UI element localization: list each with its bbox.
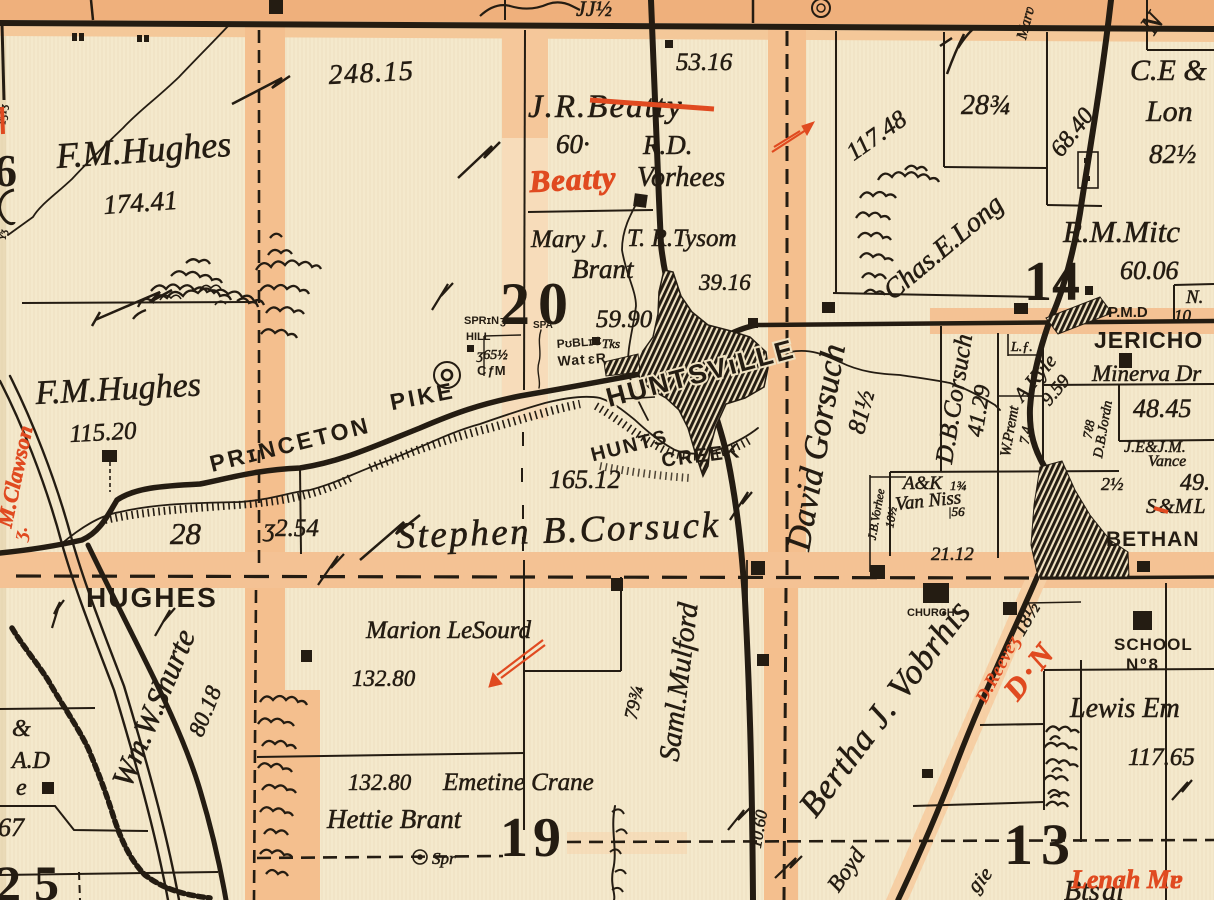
svg-text:Lewis Em: Lewis Em <box>1069 693 1180 724</box>
svg-text:48.45: 48.45 <box>1133 394 1192 423</box>
svg-text:53.16: 53.16 <box>676 49 733 76</box>
svg-text:Minerva Dr: Minerva Dr <box>1091 361 1202 386</box>
svg-text:|56: |56 <box>948 504 965 519</box>
svg-text:Lenah Mɐ: Lenah Mɐ <box>1070 865 1183 894</box>
svg-text:82½: 82½ <box>1149 139 1196 169</box>
svg-text:117.65: 117.65 <box>1128 744 1195 771</box>
svg-text:JERICHO: JERICHO <box>1094 327 1203 353</box>
svg-text:5: 5 <box>34 855 59 900</box>
svg-text:Lon: Lon <box>1145 95 1193 128</box>
svg-text:R.D.: R.D. <box>642 130 693 160</box>
svg-text:132.80: 132.80 <box>352 666 416 691</box>
svg-text:P.M.D: P.M.D <box>1108 304 1148 321</box>
svg-text:Spr: Spr <box>432 849 456 868</box>
svg-text:132.80: 132.80 <box>348 770 412 795</box>
svg-text:165.12: 165.12 <box>549 465 621 494</box>
svg-text:ʒ65½: ʒ65½ <box>476 348 508 363</box>
svg-text:Ƴʒ: Ƴʒ <box>0 229 9 241</box>
svg-text:Nº8: Nº8 <box>1126 655 1160 674</box>
svg-text:14: 14 <box>1024 251 1080 313</box>
svg-text:S &M L: S &M L <box>1146 494 1206 518</box>
svg-text:13: 13 <box>1004 812 1078 877</box>
svg-text:Vorhees: Vorhees <box>637 162 725 193</box>
svg-text:Emetine Crane: Emetine Crane <box>442 769 594 796</box>
svg-text:Brant: Brant <box>572 254 635 284</box>
svg-text:49.: 49. <box>1180 470 1210 496</box>
svg-text:28¾: 28¾ <box>961 90 1010 121</box>
svg-text:2: 2 <box>0 855 21 900</box>
svg-text:R.M.Mitc: R.M.Mitc <box>1062 214 1180 249</box>
svg-text:59.90: 59.90 <box>596 306 653 333</box>
svg-text:39.16: 39.16 <box>698 270 751 295</box>
svg-text:67: 67 <box>0 813 25 842</box>
svg-text:CHURCH: CHURCH <box>907 607 955 619</box>
svg-text:&: & <box>12 716 31 742</box>
svg-text:6: 6 <box>0 145 17 196</box>
svg-text:174.41: 174.41 <box>102 185 178 220</box>
svg-text:7.4: 7.4 <box>1018 425 1036 445</box>
svg-text:SPRɪN ʒ: SPRɪN ʒ <box>464 315 506 327</box>
svg-text:2½: 2½ <box>1101 474 1124 494</box>
svg-text:Marion LeSourd: Marion LeSourd <box>365 617 532 644</box>
svg-text:SPA: SPA <box>533 320 553 331</box>
svg-text:N.: N. <box>1185 287 1203 308</box>
svg-text:L.ƒ.: L.ƒ. <box>1010 340 1033 355</box>
svg-text:HUGHES: HUGHES <box>86 582 218 613</box>
svg-text:115.20: 115.20 <box>69 418 138 448</box>
svg-text:Vance: Vance <box>1148 453 1186 470</box>
svg-text:JJ½: JJ½ <box>576 0 612 21</box>
svg-text:248.15: 248.15 <box>328 56 416 91</box>
svg-text:10: 10 <box>1174 306 1192 325</box>
svg-text:21.12: 21.12 <box>931 544 974 565</box>
svg-text:A.D: A.D <box>10 748 50 774</box>
svg-text:60.06: 60.06 <box>1120 256 1179 285</box>
svg-text:Beatty: Beatty <box>528 159 618 199</box>
svg-text:BETHAN: BETHAN <box>1106 528 1200 551</box>
svg-text:SCHOOL: SCHOOL <box>1114 635 1193 654</box>
svg-text:C ƒM: C ƒM <box>477 363 506 378</box>
svg-text:1¾: 1¾ <box>950 478 967 493</box>
svg-text:Mary J.: Mary J. <box>530 226 609 253</box>
svg-text:28: 28 <box>170 516 202 551</box>
svg-text:60·: 60· <box>556 129 590 159</box>
svg-text:HILL: HILL <box>466 331 491 343</box>
svg-text:ʒ2.54: ʒ2.54 <box>262 515 319 542</box>
svg-text:T. R.Tysom: T. R.Tysom <box>627 225 737 252</box>
svg-text:Hettie Brant: Hettie Brant <box>326 804 463 834</box>
svg-text:19: 19 <box>500 807 566 869</box>
svg-text:e: e <box>16 775 27 801</box>
svg-text:C.E &: C.E & <box>1130 54 1207 87</box>
